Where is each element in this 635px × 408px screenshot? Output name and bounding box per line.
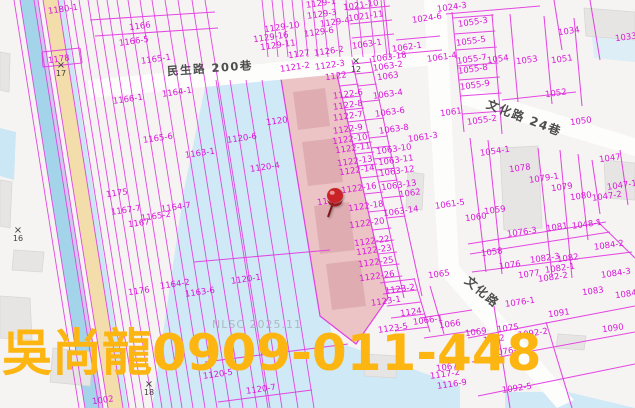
road-wenhua-vertical: [424, 0, 459, 274]
road-wenhua-24: [460, 86, 635, 156]
building-block: [293, 88, 330, 130]
pin-glint: [330, 191, 335, 195]
contact-overlay-text: 吳尚龍0909-011-448: [2, 326, 541, 381]
water-patch: [0, 128, 16, 180]
map-pin-icon[interactable]: [322, 186, 348, 220]
cadastral-map-canvas[interactable]: 1180-111661166-511781165-11164-11166-111…: [0, 0, 635, 408]
pin-head: [327, 188, 343, 203]
building-block: [302, 138, 343, 186]
building-block: [326, 260, 366, 310]
